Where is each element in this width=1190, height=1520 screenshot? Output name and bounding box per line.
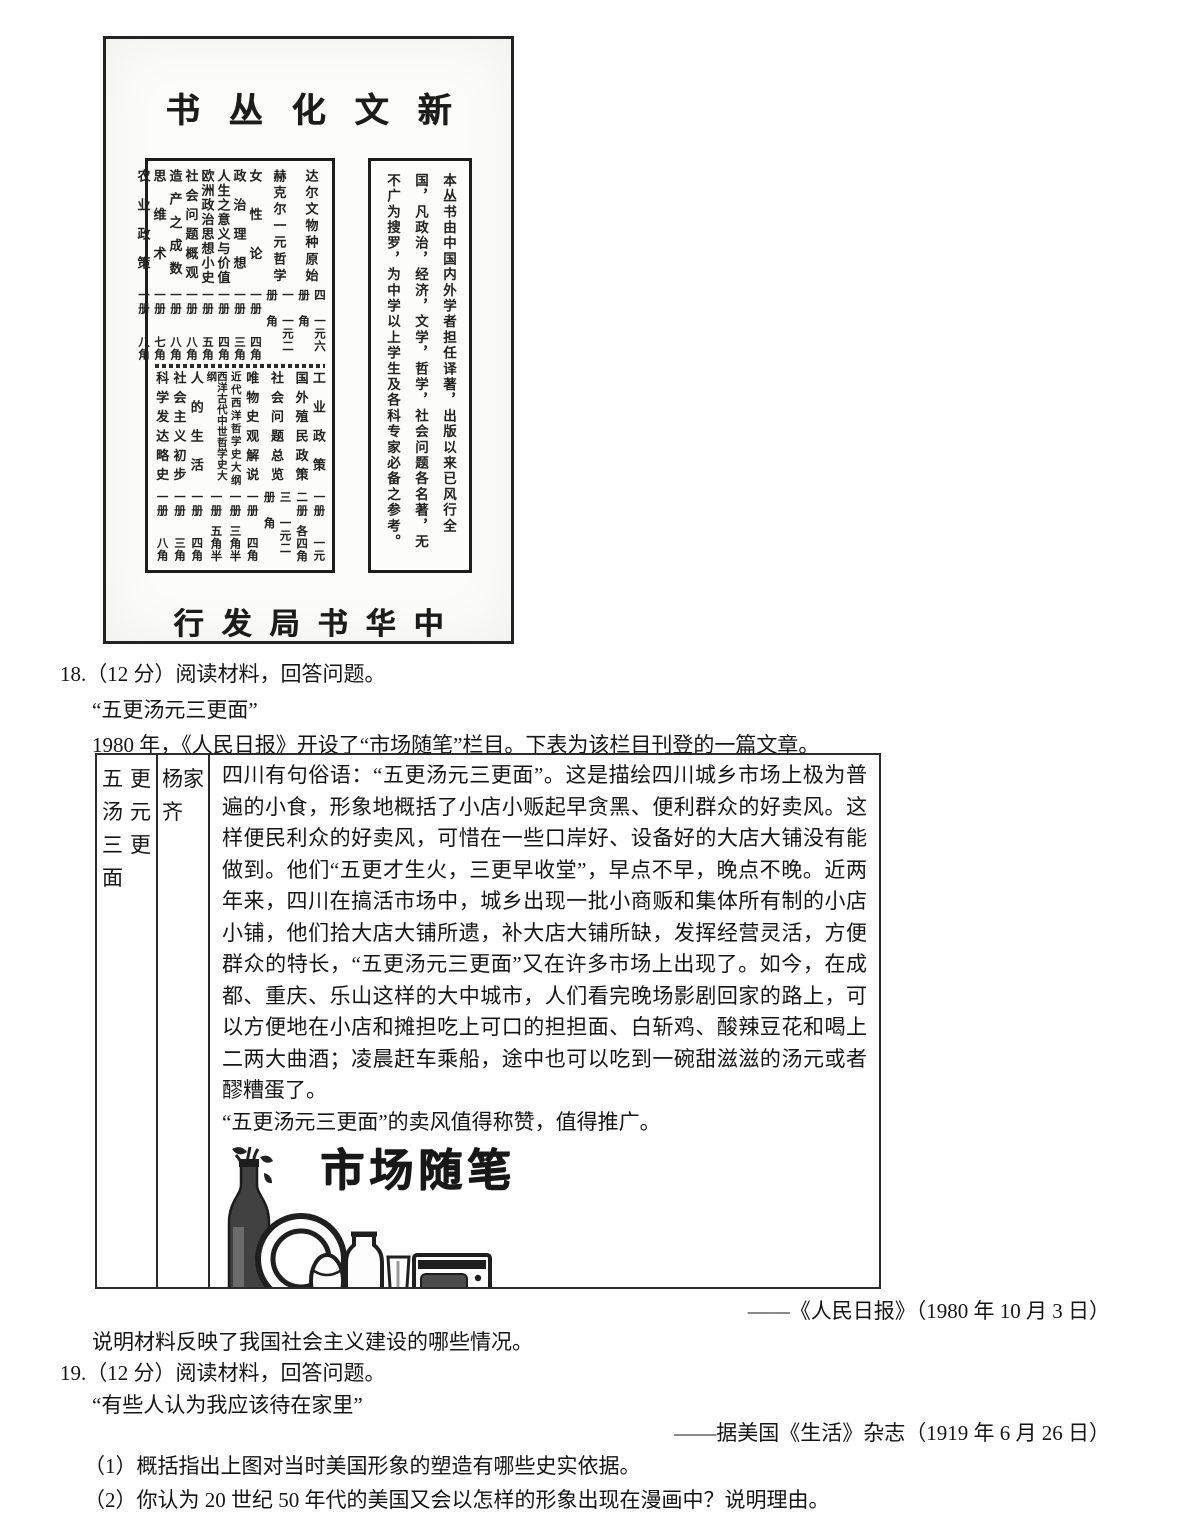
book-price: 八角	[167, 336, 183, 361]
book-list-lower: 工业政策 一册 一元 国外殖民政策 二册 各四角 社会问题总览 三册 一元二角 …	[153, 371, 327, 563]
source-line-life-magazine: ——据美国《生活》杂志（1919 年 6 月 26 日）	[674, 1417, 1110, 1447]
book-volumes: 一册	[215, 289, 231, 316]
book-entry: 政治理想 一册 三角	[231, 169, 247, 361]
question-19-stem: 19.（12 分）阅读材料，回答问题。	[60, 1357, 386, 1387]
book-list-upper-section: 达尔文物种原始 四册 一元六角 赫克尔一元哲学 一册 一元二角 女性论 一册 四…	[153, 169, 327, 361]
table-author-cell: 杨家齐	[158, 755, 210, 1287]
book-title: 欧洲政治思想小史	[201, 169, 214, 287]
book-title: 科学发达略史	[155, 371, 168, 489]
ad-body: 达尔文物种原始 四册 一元六角 赫克尔一元哲学 一册 一元二角 女性论 一册 四…	[106, 158, 511, 573]
book-price: 四角	[244, 537, 260, 562]
book-volumes: 三册	[260, 491, 292, 515]
book-price: 三角	[231, 336, 247, 361]
book-title: 唯物史观解说	[245, 371, 258, 489]
book-volumes: 一册	[263, 289, 295, 313]
material-table: 五更汤元三更面 杨家齐 四川有句俗语：“五更汤元三更面”。这是描绘四川城乡市场上…	[95, 753, 881, 1289]
book-price: 三角半	[227, 525, 243, 563]
question-19-subtitle: “有些人认为我应该待在家里”	[92, 1389, 363, 1419]
book-volumes: 二册	[293, 491, 309, 518]
book-entry: 女性论 一册 四角	[247, 169, 263, 361]
book-price: 四角	[215, 336, 231, 361]
book-title: 女性论	[249, 169, 262, 287]
book-entry: 国外殖民政策 二册 各四角	[292, 371, 309, 563]
book-volumes: 四册	[295, 289, 327, 313]
book-list-upper: 达尔文物种原始 四册 一元六角 赫克尔一元哲学 一册 一元二角 女性论 一册 四…	[153, 169, 327, 361]
book-volumes: 一册	[310, 491, 326, 518]
book-volumes: 一册	[183, 289, 199, 316]
book-entry: 欧洲政治思想小史 一册 五角	[199, 169, 215, 361]
book-price: 八角	[135, 336, 151, 361]
book-entry: 社会问题概观 一册 八角	[183, 169, 199, 361]
article-paragraph-1: 四川有句俗语：“五更汤元三更面”。这是描绘四川城乡市场上极为普遍的小食，形象地概…	[222, 760, 867, 1107]
radio-icon	[414, 1255, 490, 1287]
book-title: 赫克尔一元哲学	[273, 169, 286, 287]
table-title-cell: 五更汤元三更面	[97, 755, 158, 1287]
article-paragraph-2: “五更汤元三更面”的卖风值得称赞，值得推广。	[222, 1107, 867, 1139]
book-entry: 唯物史观解说 一册 四角	[243, 371, 260, 563]
book-entry: 社会主义初步 一册 三角	[170, 371, 187, 563]
ad-publisher-line: 行发局书华中	[106, 599, 511, 643]
book-volumes: 一册	[135, 289, 151, 316]
book-volumes: 一册	[199, 289, 215, 316]
book-price: 八角	[183, 336, 199, 361]
book-price: 一元二角	[260, 517, 292, 562]
book-volumes: 一册	[154, 491, 170, 518]
book-volumes: 一册	[151, 289, 167, 316]
book-list-box: 达尔文物种原始 四册 一元六角 赫克尔一元哲学 一册 一元二角 女性论 一册 四…	[145, 158, 335, 573]
book-title: 农业政策	[137, 169, 150, 287]
book-volumes: 一册	[244, 491, 260, 518]
cup-icon	[311, 1255, 343, 1287]
sub-question-1: （1）概括指出上图对当时美国形象的塑造有哪些史实依据。	[84, 1450, 641, 1480]
book-title: 近代西洋哲学史大纲	[229, 371, 240, 489]
book-entry: 科学发达略史 一册 八角	[153, 371, 170, 563]
wavy-divider	[155, 364, 325, 368]
book-price: 四角	[247, 336, 263, 361]
book-price: 五角	[199, 336, 215, 361]
book-price: 四角	[188, 537, 204, 562]
book-volumes: 一册	[167, 289, 183, 316]
book-entry: 人生之意义与价值 一册 四角	[215, 169, 231, 361]
book-title: 工业政策	[312, 371, 325, 489]
book-entry: 达尔文物种原始 四册 一元六角	[295, 169, 327, 361]
book-entry: 农业政策 一册 八角	[135, 169, 151, 361]
book-price: 一元二角	[263, 315, 295, 360]
book-price: 三角	[171, 537, 187, 562]
book-volumes: 一册	[171, 491, 187, 518]
book-volumes: 一册	[207, 491, 223, 518]
book-entry: 社会问题总览 三册 一元二角	[260, 371, 292, 563]
milk-bottle-icon	[346, 1234, 382, 1287]
book-title: 思维术	[153, 169, 166, 287]
ad-blurb-box: 本丛书由中国内外学者担任译著，出版以来已风行全国，凡政治，经济，文学，哲学，社会…	[368, 158, 472, 573]
book-volumes: 一册	[227, 491, 243, 518]
question-18-subtitle: “五更汤元三更面”	[92, 694, 258, 724]
book-price: 五角半	[207, 525, 223, 563]
book-entry: 思维术 一册 七角	[151, 169, 167, 361]
source-line-renmin-ribao: ——《人民日报》（1980 年 10 月 3 日）	[748, 1295, 1110, 1325]
book-title: 社会问题总览	[270, 371, 283, 489]
question-18-stem: 18.（12 分）阅读材料，回答问题。	[60, 658, 386, 688]
book-title: 社会问题概观	[185, 169, 198, 287]
book-price: 一元	[310, 537, 326, 562]
market-jottings-title: 市场随笔	[320, 1155, 516, 1187]
book-volumes: 一册	[231, 289, 247, 316]
book-price: 八角	[154, 537, 170, 562]
book-advertisement-scan: 书丛化文新 达尔文物种原始 四册 一元六角 赫克尔一元哲学 一册 一元二角 女性…	[103, 36, 514, 644]
book-volumes: 一册	[247, 289, 263, 316]
book-entry: 造产之成数 一册 八角	[167, 169, 183, 361]
book-title: 政治理想	[233, 169, 246, 287]
book-title: 社会主义初步	[172, 371, 185, 489]
glass-icon	[388, 1257, 409, 1287]
book-title: 国外殖民政策	[295, 371, 308, 489]
market-jottings-logo: 市场随笔	[224, 1143, 496, 1287]
book-entry: 近代西洋哲学史大纲 一册 三角半	[226, 371, 243, 563]
ad-series-title: 书丛化文新	[106, 83, 511, 132]
book-price: 一元六角	[295, 315, 327, 360]
book-volumes: 一册	[188, 491, 204, 518]
book-list-lower-section: 工业政策 一册 一元 国外殖民政策 二册 各四角 社会问题总览 三册 一元二角 …	[153, 371, 327, 563]
question-18-task: 说明材料反映了我国社会主义建设的哪些情况。	[92, 1326, 533, 1356]
book-title: 人的生活	[190, 371, 203, 489]
book-entry: 赫克尔一元哲学 一册 一元二角	[263, 169, 295, 361]
book-price: 七角	[151, 336, 167, 361]
ad-blurb-text: 本丛书由中国内外学者担任译著，出版以来已风行全国，凡政治，经济，文学，哲学，社会…	[378, 173, 462, 558]
book-entry: 西洋古代中世哲学史大纲 一册 五角半	[205, 371, 226, 563]
table-article-cell: 四川有句俗语：“五更汤元三更面”。这是描绘四川城乡市场上极为普遍的小食，形象地概…	[210, 755, 879, 1287]
book-title: 达尔文物种原始	[305, 169, 318, 287]
sub-question-2: （2）你认为 20 世纪 50 年代的美国又会以怎样的形象出现在漫画中？说明理由…	[84, 1484, 830, 1514]
book-title: 西洋古代中世哲学史大纲	[205, 371, 226, 489]
book-entry: 工业政策 一册 一元	[310, 371, 327, 563]
book-title: 人生之意义与价值	[217, 169, 230, 287]
book-title: 造产之成数	[169, 169, 182, 287]
book-entry: 人的生活 一册 四角	[188, 371, 205, 563]
book-price: 各四角	[293, 525, 309, 563]
